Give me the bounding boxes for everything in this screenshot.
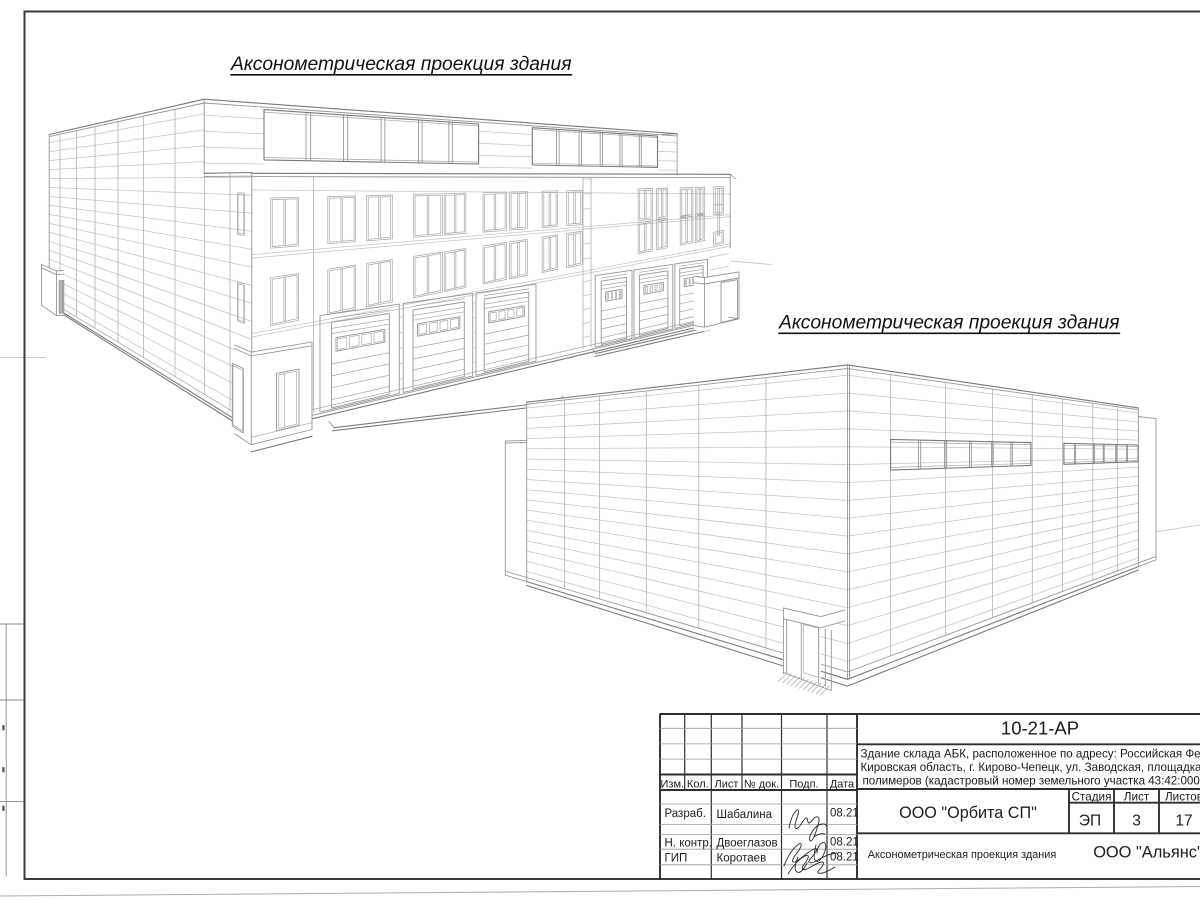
svg-text:№ док.: № док. [744,779,779,791]
svg-text:Коротаев: Коротаев [717,853,767,865]
svg-text:Аксонометрическая проекция зда: Аксонометрическая проекция здания [778,312,1120,334]
svg-text:Разраб.: Разраб. [665,808,706,820]
svg-text:Листов: Листов [1165,790,1200,803]
svg-text:Шабалина: Шабалина [717,809,773,821]
svg-text:Двоеглазов: Двоеглазов [717,838,778,850]
svg-text:Н. контр.: Н. контр. [665,838,712,850]
svg-text:08.21: 08.21 [830,837,859,849]
svg-text:Дата: Дата [830,779,855,791]
svg-text:ООО "Альянс": ООО "Альянс" [1093,844,1200,862]
svg-text:ГИП: ГИП [665,853,688,865]
svg-text:ООО "Орбита СП": ООО "Орбита СП" [899,804,1037,822]
svg-text:08.21: 08.21 [830,808,859,820]
svg-text:Лист: Лист [715,779,739,791]
svg-text:Лист: Лист [1124,790,1150,803]
svg-text:Подп.: Подп. [789,779,818,791]
svg-text:ЭП: ЭП [1079,813,1101,830]
svg-text:Аксонометрическая проекция зда: Аксонометрическая проекция здания [868,849,1057,861]
svg-text:10-21-АР: 10-21-АР [1001,718,1079,739]
svg-text:Кировская область, г. Кирово-Ч: Кировская область, г. Кирово-Чепецк, ул.… [861,761,1200,774]
svg-text:3: 3 [1132,813,1141,830]
svg-text:Изм.: Изм. [661,779,685,791]
svg-text:Здание склада АБК, расположенн: Здание склада АБК, расположенное по адре… [861,747,1200,760]
svg-text:17: 17 [1175,813,1192,830]
svg-text:Стадия: Стадия [1072,790,1112,803]
svg-text:полимеров (кадастровый номер з: полимеров (кадастровый номер земельного … [863,775,1200,788]
svg-text:Аксонометрическая проекция зда: Аксонометрическая проекция здания [230,53,572,75]
svg-text:Кол.: Кол. [687,779,709,791]
